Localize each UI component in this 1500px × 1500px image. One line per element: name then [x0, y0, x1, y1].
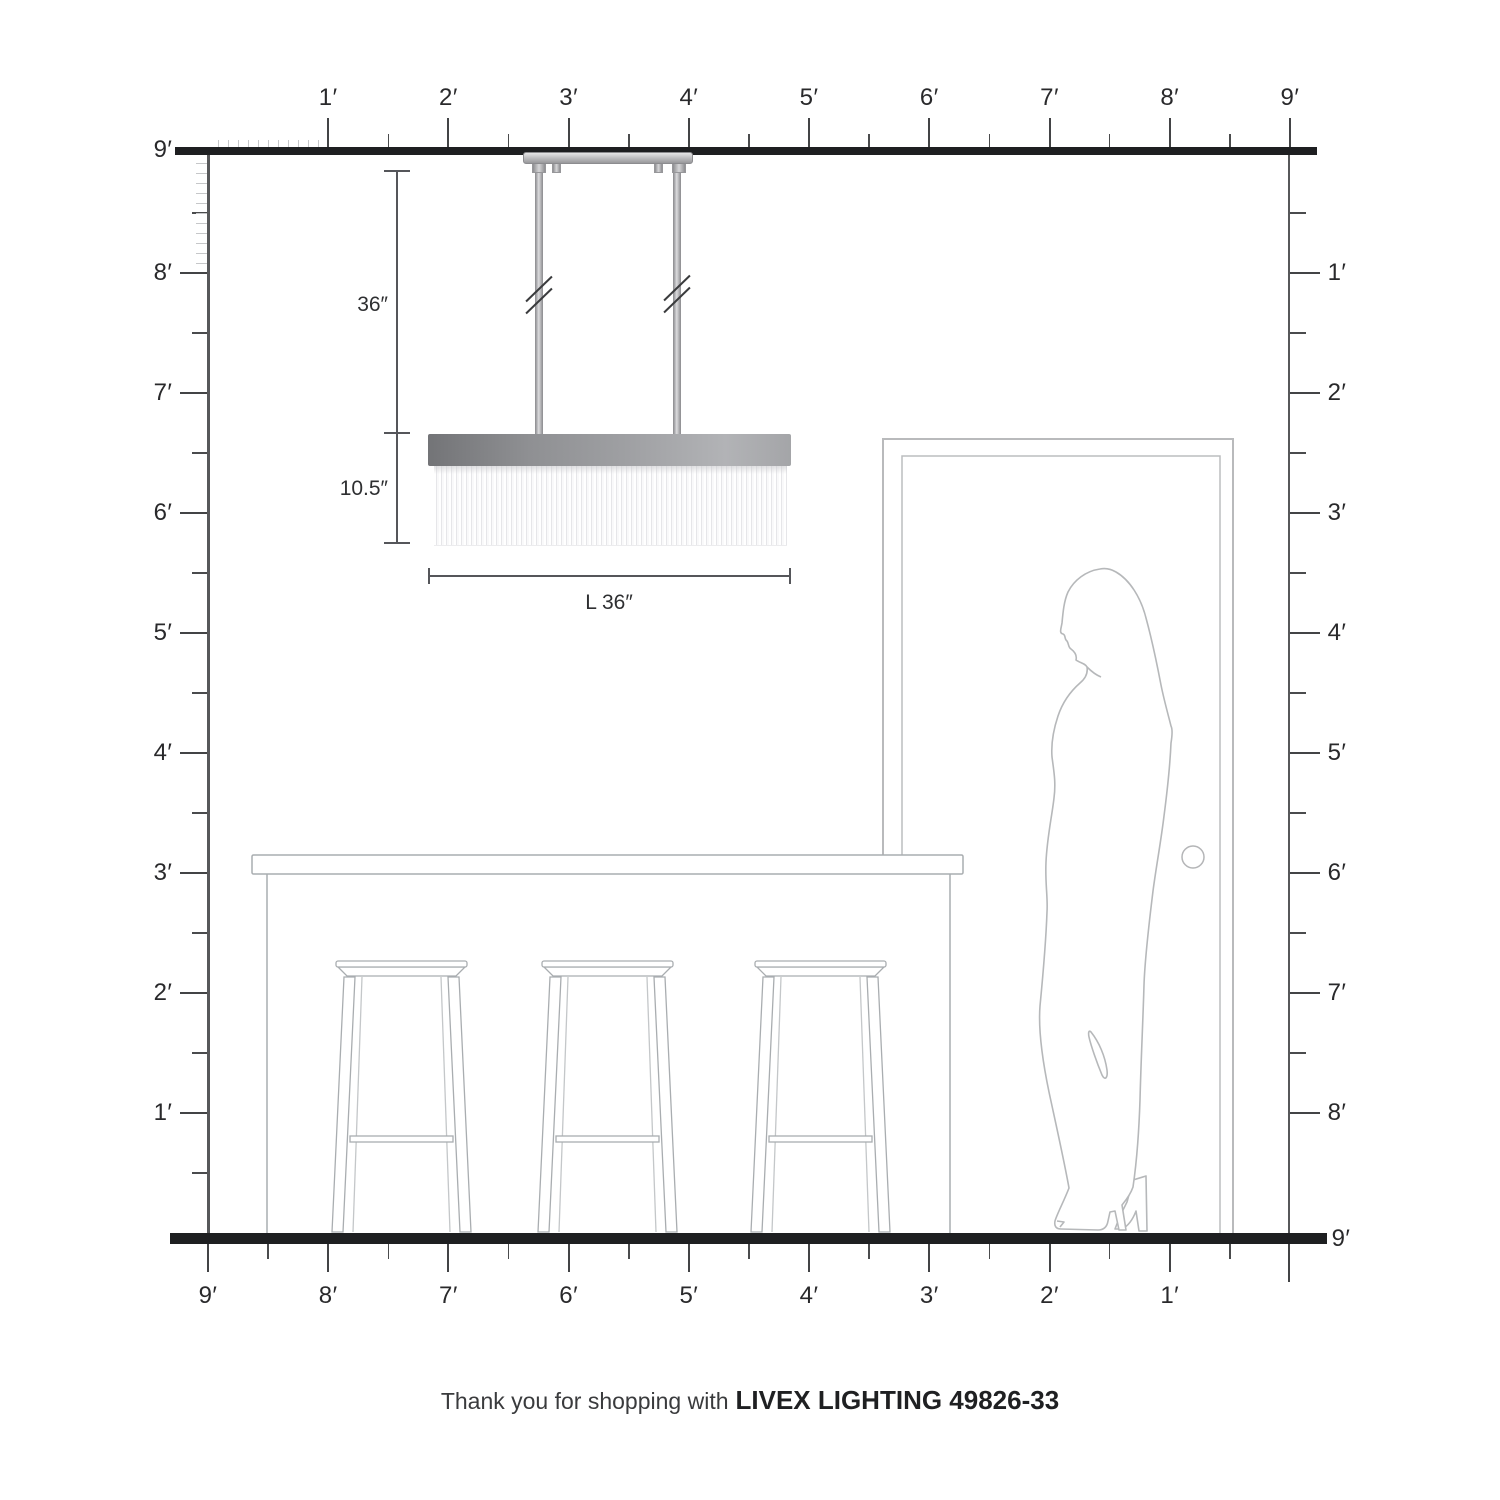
stool-part: [350, 1136, 453, 1142]
kitchen-island: [252, 855, 963, 1234]
dimension-diagram: 1′2′3′4′5′6′7′8′9′9′8′7′6′5′4′3′2′1′1′2′…: [0, 0, 1500, 1500]
top-ruler-label: 4′: [679, 86, 698, 110]
right-ruler-label: 8′: [1328, 1101, 1347, 1125]
left-ruler-label: 1′: [154, 1101, 173, 1125]
top-ruler-halftick: [388, 134, 390, 147]
ceiling-line: [175, 147, 1317, 155]
right-ruler-tick: [1290, 1112, 1320, 1114]
left-ruler-label: 3′: [154, 861, 173, 885]
height-dim-line: [396, 171, 398, 543]
right-ruler-halftick: [1290, 212, 1306, 214]
top-ruler-label: 2′: [439, 86, 458, 110]
left-ruler-inch-tick: [196, 163, 207, 164]
top-ruler-halftick: [989, 134, 991, 147]
stool-part: [542, 961, 673, 967]
right-ruler-label: 2′: [1328, 381, 1347, 405]
right-ruler-tick: [1290, 632, 1320, 634]
top-ruler-inch-tick: [278, 140, 279, 147]
top-ruler-label: 1′: [319, 86, 338, 110]
caption: Thank you for shopping withLIVEX LIGHTIN…: [0, 1384, 1500, 1418]
left-ruler-tick: [180, 752, 207, 754]
bottom-ruler-tick: [808, 1244, 810, 1272]
door-knob: [1182, 846, 1204, 868]
bottom-ruler-label: 1′: [1160, 1284, 1179, 1308]
top-ruler-inch-tick: [258, 140, 259, 147]
left-ruler-label: 7′: [154, 381, 173, 405]
left-ruler-tick: [180, 512, 207, 514]
ceiling-canopy: [523, 152, 693, 164]
top-ruler-tick: [688, 118, 690, 147]
bottom-ruler-label: 3′: [920, 1284, 939, 1308]
right-ruler-tick: [1290, 392, 1320, 394]
top-ruler-tick: [1049, 118, 1051, 147]
top-ruler-halftick: [868, 134, 870, 147]
left-ruler-inch-tick: [196, 193, 207, 194]
top-ruler-inch-tick: [238, 140, 239, 147]
left-ruler-tick: [180, 632, 207, 634]
top-ruler-halftick: [628, 134, 630, 147]
stool-part: [338, 967, 465, 976]
right-ruler-halftick: [1290, 932, 1306, 934]
stool-part: [544, 967, 671, 976]
top-ruler-label: 7′: [1040, 86, 1059, 110]
left-ruler-inch-tick: [196, 213, 207, 214]
bottom-ruler-label: 5′: [679, 1284, 698, 1308]
right-ruler-tick: [1290, 752, 1320, 754]
right-ruler-tick: [1290, 992, 1320, 994]
left-ruler-halftick: [192, 692, 207, 694]
right-ruler-halftick: [1290, 572, 1306, 574]
top-ruler-halftick: [1109, 134, 1111, 147]
right-ruler-floor-label: 9′: [1332, 1227, 1351, 1251]
right-ruler-tick: [1290, 512, 1320, 514]
left-ruler-tick: [180, 392, 207, 394]
left-ruler-inch-tick: [196, 173, 207, 174]
top-ruler-tick: [447, 118, 449, 147]
top-ruler-label: 9′: [1281, 86, 1300, 110]
dim-tick: [384, 170, 410, 172]
top-ruler-label: 6′: [920, 86, 939, 110]
left-ruler-halftick: [192, 932, 207, 934]
caption-prefix: Thank you for shopping with: [441, 1388, 729, 1414]
right-wall-ruler-line: [1288, 155, 1290, 1233]
top-ruler-inch-tick: [248, 140, 249, 147]
top-ruler-label: 5′: [800, 86, 819, 110]
left-ruler-label: 8′: [154, 261, 173, 285]
left-ruler-halftick: [192, 452, 207, 454]
floor-line: [170, 1233, 1327, 1244]
bottom-ruler-halftick: [628, 1244, 630, 1259]
top-ruler-inch-tick: [228, 140, 229, 147]
top-ruler-tick: [928, 118, 930, 147]
top-ruler-tick: [808, 118, 810, 147]
bottom-ruler-label: 6′: [559, 1284, 578, 1308]
right-ruler-label: 1′: [1328, 261, 1347, 285]
right-ruler-halftick: [1290, 692, 1306, 694]
bottom-ruler-label: 9′: [199, 1284, 218, 1308]
left-ruler-inch-tick: [196, 253, 207, 254]
canopy-mount: [532, 164, 546, 173]
top-ruler-halftick: [508, 134, 510, 147]
left-ruler-label: 6′: [154, 501, 173, 525]
bottom-ruler-tick: [327, 1244, 329, 1272]
top-ruler-label: 8′: [1160, 86, 1179, 110]
suspension-height-label: 36″: [318, 294, 388, 315]
bottom-ruler-halftick: [267, 1244, 269, 1259]
top-ruler-tick: [327, 118, 329, 147]
bottom-ruler-tick: [928, 1244, 930, 1272]
bottom-ruler-label: 7′: [439, 1284, 458, 1308]
left-ruler-label: 4′: [154, 741, 173, 765]
right-ruler-halftick: [1290, 452, 1306, 454]
bottom-ruler-tick: [1169, 1244, 1171, 1272]
caption-brand: LIVEX LIGHTING 49826-33: [736, 1385, 1060, 1415]
right-ruler-halftick: [1290, 1052, 1306, 1054]
bottom-ruler-halftick: [508, 1244, 510, 1259]
bottom-ruler-zero-tick: [1288, 1244, 1290, 1282]
right-ruler-label: 5′: [1328, 741, 1347, 765]
top-ruler-inch-tick: [218, 140, 219, 147]
left-ruler-halftick: [192, 1052, 207, 1054]
left-ruler-tick: [180, 1112, 207, 1114]
stool-part: [769, 1136, 872, 1142]
bottom-ruler-label: 8′: [319, 1284, 338, 1308]
top-ruler-halftick: [748, 134, 750, 147]
left-ruler-halftick: [192, 1172, 207, 1174]
left-ruler-inch-tick: [196, 243, 207, 244]
right-ruler-tick: [1290, 872, 1320, 874]
dim-tick: [384, 542, 410, 544]
left-ruler-tick: [180, 992, 207, 994]
right-ruler-tick: [1290, 272, 1320, 274]
right-ruler-halftick: [1290, 812, 1306, 814]
top-ruler-inch-tick: [288, 140, 289, 147]
canopy-mount: [654, 164, 663, 173]
right-ruler-label: 3′: [1328, 501, 1347, 525]
left-ruler-label: 9′: [154, 138, 173, 162]
canopy-mount: [552, 164, 561, 173]
right-ruler-label: 7′: [1328, 981, 1347, 1005]
left-ruler-inch-tick: [196, 183, 207, 184]
top-ruler-label: 3′: [559, 86, 578, 110]
top-ruler-tick: [568, 118, 570, 147]
drum-band: [428, 434, 791, 466]
left-ruler-inch-tick: [196, 203, 207, 204]
top-ruler-tick: [1289, 118, 1291, 147]
countertop: [252, 855, 963, 874]
right-ruler-halftick: [1290, 332, 1306, 334]
bottom-ruler-label: 4′: [800, 1284, 819, 1308]
bottom-ruler-halftick: [388, 1244, 390, 1259]
stool-part: [336, 961, 467, 967]
bottom-ruler-halftick: [1229, 1244, 1231, 1259]
left-ruler-label: 2′: [154, 981, 173, 1005]
stool-part: [556, 1136, 659, 1142]
top-ruler-inch-tick: [298, 140, 299, 147]
left-ruler-inch-tick: [196, 263, 207, 264]
bottom-ruler-tick: [447, 1244, 449, 1272]
left-wall-ruler-line: [207, 155, 210, 1233]
bottom-ruler-tick: [1049, 1244, 1051, 1272]
crystal-rod-fringe: [434, 466, 787, 546]
dim-tick: [384, 432, 410, 434]
left-ruler-inch-tick: [196, 223, 207, 224]
left-ruler-tick: [180, 872, 207, 874]
top-ruler-tick: [1169, 118, 1171, 147]
bottom-ruler-halftick: [868, 1244, 870, 1259]
left-ruler-halftick: [192, 572, 207, 574]
right-ruler-label: 6′: [1328, 861, 1347, 885]
stool-part: [757, 967, 884, 976]
left-ruler-inch-tick: [196, 233, 207, 234]
left-ruler-tick: [180, 272, 207, 274]
dim-tick: [428, 568, 430, 584]
bottom-ruler-halftick: [989, 1244, 991, 1259]
fixture-length-label: L 36″: [549, 592, 669, 613]
top-ruler-halftick: [1229, 134, 1231, 147]
bottom-ruler-tick: [688, 1244, 690, 1272]
left-ruler-label: 5′: [154, 621, 173, 645]
canopy-mount: [672, 164, 686, 173]
bottom-ruler-halftick: [1109, 1244, 1111, 1259]
right-ruler-label: 4′: [1328, 621, 1347, 645]
room-scene: [0, 0, 1500, 1500]
stool-part: [755, 961, 886, 967]
bottom-ruler-label: 2′: [1040, 1284, 1059, 1308]
top-ruler-inch-tick: [268, 140, 269, 147]
left-ruler-halftick: [192, 332, 207, 334]
top-ruler-inch-tick: [318, 140, 319, 147]
bottom-ruler-tick: [207, 1244, 209, 1272]
fixture-height-label: 10.5″: [308, 478, 388, 499]
length-dim-line: [428, 575, 790, 577]
top-ruler-inch-tick: [308, 140, 309, 147]
bottom-ruler-halftick: [748, 1244, 750, 1259]
bottom-ruler-tick: [568, 1244, 570, 1272]
left-ruler-halftick: [192, 812, 207, 814]
dim-tick: [789, 568, 791, 584]
